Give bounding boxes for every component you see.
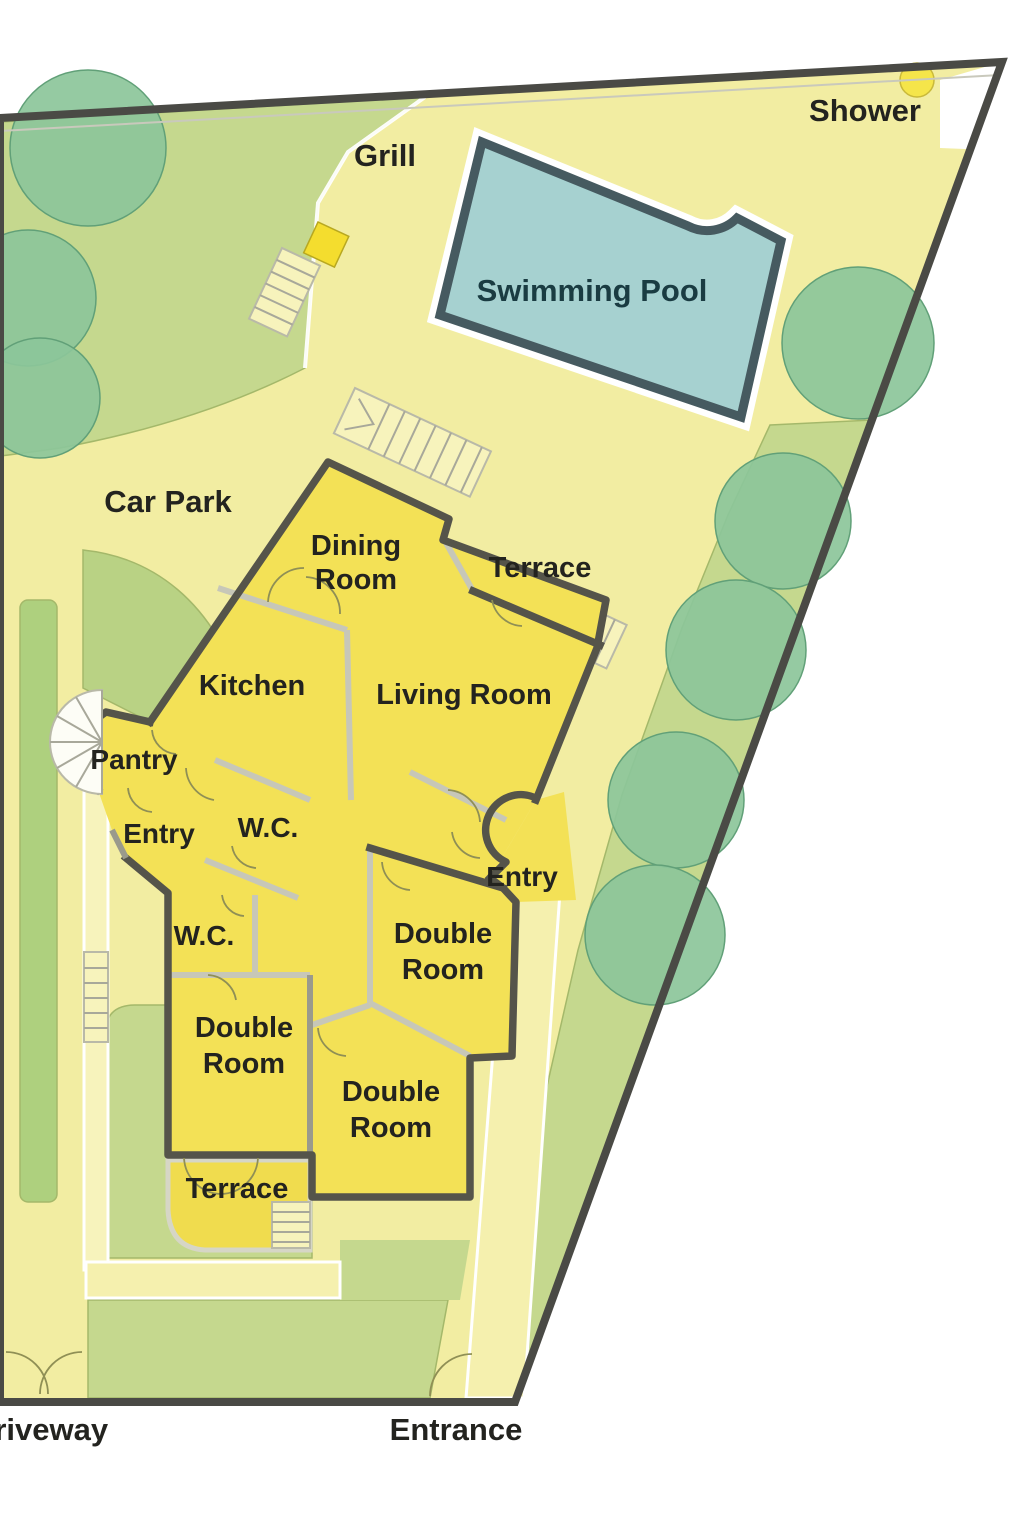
label-double-room-left: Room [203,1048,285,1080]
label-double-room-right: Double [394,918,492,950]
label-entry-right: Entry [486,861,558,892]
terrace-lower-stairs [272,1202,310,1248]
label-double-room-bottom: Room [350,1112,432,1144]
label-grill: Grill [354,138,416,173]
lawn-bottom [88,1300,448,1398]
label-shower: Shower [809,93,921,128]
walkway-stairs [84,952,108,1042]
label-double-room-right: Room [402,954,484,986]
label-double-room-left: Double [195,1012,293,1044]
south-path [86,1262,340,1298]
label-wc-lower: W.C. [174,920,235,951]
label-pantry: Pantry [90,744,178,775]
lawn-bottom-right-patch [340,1240,470,1300]
label-kitchen: Kitchen [199,670,305,702]
label-wc-upper: W.C. [238,812,299,843]
label-dining-room: Room [315,564,397,596]
tree-icon [10,70,166,226]
label-driveway: Driveway [0,1412,109,1447]
label-living-room: Living Room [376,679,552,711]
tree-icon [715,453,851,589]
label-double-room-bottom: Double [342,1076,440,1108]
label-entry-left: Entry [123,818,195,849]
label-terrace-lower: Terrace [186,1173,289,1205]
tree-icon [608,732,744,868]
label-dining-room: Dining [311,530,401,562]
site-plan: Grill Shower Swimming Pool Car Park Dini… [0,0,1024,1536]
site-plan-canvas: Grill Shower Swimming Pool Car Park Dini… [0,0,1024,1536]
hedge-strip [20,600,57,1202]
label-terrace-upper: Terrace [489,552,592,584]
label-entrance: Entrance [390,1412,523,1447]
label-car-park: Car Park [104,484,232,519]
label-swimming-pool: Swimming Pool [477,273,708,308]
tree-icon [782,267,934,419]
